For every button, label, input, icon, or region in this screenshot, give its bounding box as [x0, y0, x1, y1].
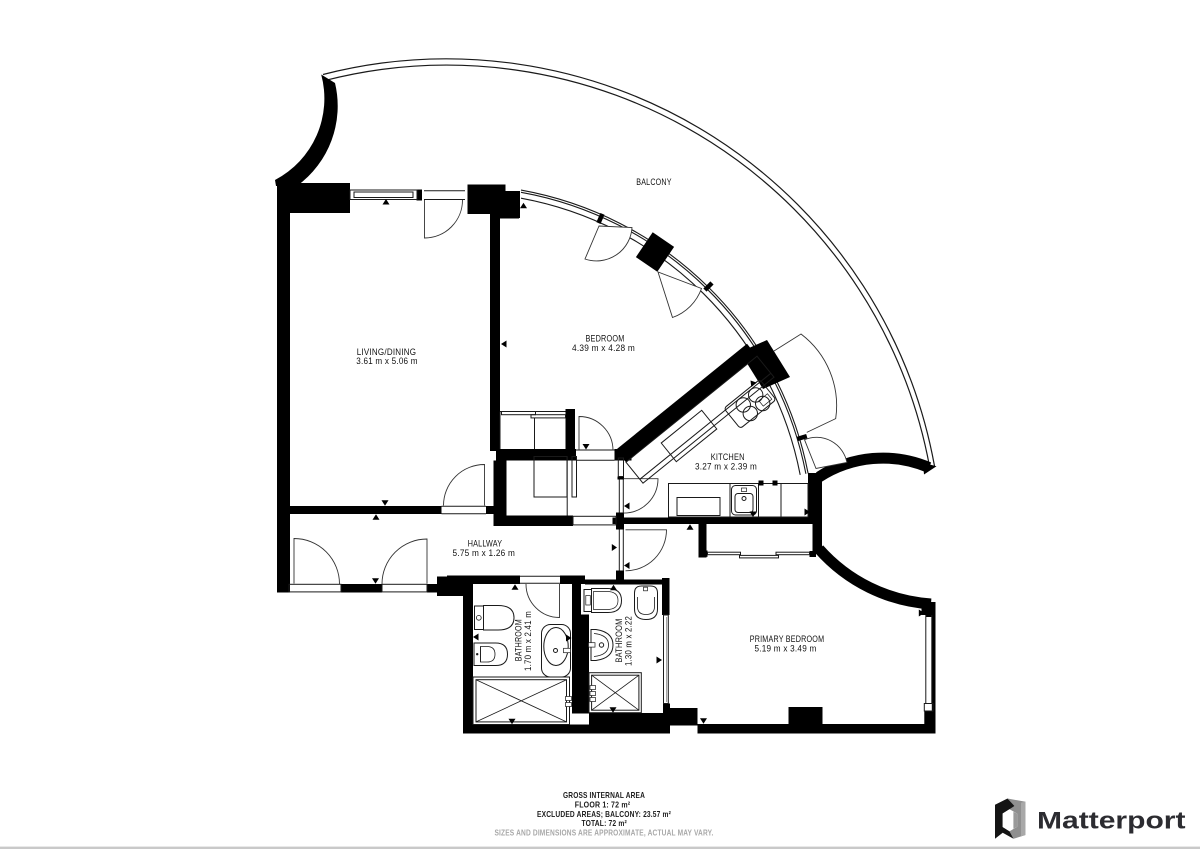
svg-text:3.27 m x 2.39 m: 3.27 m x 2.39 m	[695, 462, 757, 472]
svg-text:SIZES AND DIMENSIONS ARE APPRO: SIZES AND DIMENSIONS ARE APPROXIMATE, AC…	[495, 828, 714, 838]
svg-text:4.39 m x 4.28 m: 4.39 m x 4.28 m	[572, 343, 635, 353]
svg-text:5.19 m x 3.49 m: 5.19 m x 3.49 m	[755, 644, 817, 654]
svg-text:PRIMARY BEDROOM: PRIMARY BEDROOM	[750, 634, 825, 644]
svg-text:3.61 m x 5.06 m: 3.61 m x 5.06 m	[356, 356, 418, 366]
svg-text:KITCHEN: KITCHEN	[711, 452, 745, 462]
svg-text:1.70 m x 2.41 m: 1.70 m x 2.41 m	[523, 611, 533, 671]
svg-text:1.30 m x 2.22: 1.30 m x 2.22	[624, 616, 634, 666]
svg-text:BEDROOM: BEDROOM	[586, 333, 625, 343]
svg-text:BATHROOM: BATHROOM	[614, 619, 624, 663]
svg-text:BALCONY: BALCONY	[636, 177, 672, 187]
svg-text:5.75 m x 1.26 m: 5.75 m x 1.26 m	[453, 548, 516, 558]
svg-text:Matterport: Matterport	[1037, 808, 1186, 835]
